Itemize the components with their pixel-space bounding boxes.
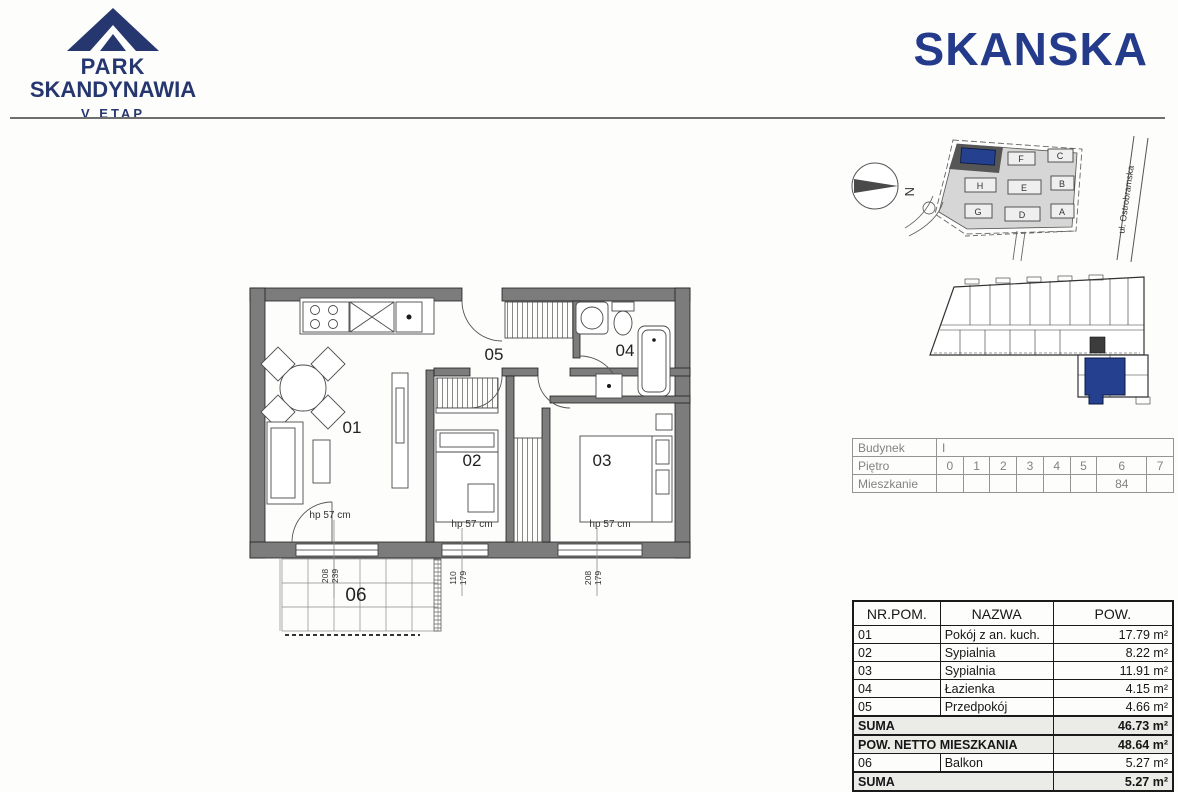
windows xyxy=(296,544,642,556)
kitchen-counter xyxy=(300,298,434,334)
header-divider xyxy=(10,117,1165,119)
apartment-row: Mieszkanie 84 xyxy=(853,475,1174,493)
wardrobe-niche xyxy=(514,438,542,542)
apartment-number: 84 xyxy=(1097,475,1147,493)
coffee-table xyxy=(313,440,330,483)
netto-row: POW. NETTO MIESZKANIA 48.64 m² xyxy=(853,735,1173,754)
suma2-value: 5.27 m² xyxy=(1053,772,1173,791)
sill-height-label-1: hp 57 cm xyxy=(309,510,350,521)
col-header-name: NAZWA xyxy=(940,601,1053,626)
room-label-06: 06 xyxy=(345,585,366,606)
street: ul. Ostrobramska xyxy=(1116,136,1148,262)
floor-overview-plan xyxy=(910,265,1178,425)
building-label-b: B xyxy=(1059,179,1065,189)
wardrobe-05 xyxy=(505,302,573,338)
north-label: N xyxy=(902,187,917,196)
floor-0: 0 xyxy=(937,457,964,475)
bed-03 xyxy=(580,436,672,522)
building-label-f: F xyxy=(1018,154,1024,164)
skanska-logo: SKANSKA xyxy=(914,22,1148,76)
floor-3: 3 xyxy=(1017,457,1044,475)
floor-5: 5 xyxy=(1070,457,1097,475)
floor-7: 7 xyxy=(1147,457,1174,475)
street-name: ul. Ostrobramska xyxy=(1116,165,1135,234)
col-header-area: POW. xyxy=(1053,601,1173,626)
sill-height-label-2: hp 57 cm xyxy=(451,519,492,530)
desk-02 xyxy=(468,484,494,512)
building-i-highlighted xyxy=(960,148,995,165)
building-row: Budynek I xyxy=(853,439,1174,457)
sofa xyxy=(267,422,303,504)
table-row: 05 Przedpokój 4.66 m² xyxy=(853,698,1173,717)
suma2-row: SUMA 5.27 m² xyxy=(853,772,1173,791)
suma-label: SUMA xyxy=(853,716,1053,735)
project-name-line2: SKANDYNAWIA xyxy=(18,78,208,102)
table-row: 04 Łazienka 4.15 m² xyxy=(853,680,1173,698)
sill-height-label-3: hp 57 cm xyxy=(589,519,630,530)
wardrobe-02 xyxy=(436,378,498,408)
table-row: 03 Sypialnia 11.91 m² xyxy=(853,662,1173,680)
table-row: 02 Sypialnia 8.22 m² xyxy=(853,644,1173,662)
dim-3b: 179 xyxy=(593,571,603,585)
stove-icon xyxy=(303,302,349,332)
developer-logo: PARK SKANDYNAWIA V ETAP xyxy=(18,8,208,121)
table-row: 01 Pokój z an. kuch. 17.79 m² xyxy=(853,626,1173,644)
building-label: Budynek xyxy=(853,439,937,457)
netto-label: POW. NETTO MIESZKANIA xyxy=(853,735,1053,754)
building-label-d: D xyxy=(1019,210,1026,220)
suma-row: SUMA 46.73 m² xyxy=(853,716,1173,735)
building-label-g: G xyxy=(974,207,981,217)
park-skandynawia-logo-icon xyxy=(65,8,161,52)
col-header-nr: NR.POM. xyxy=(853,601,940,626)
apartment-floor-plan: 01 02 03 04 05 06 hp 57 cm hp 57 cm hp 5… xyxy=(240,278,700,668)
floor-row: Piętro 0 1 2 3 4 5 6 7 xyxy=(853,457,1174,475)
netto-value: 48.64 m² xyxy=(1053,735,1173,754)
nightstand-03 xyxy=(656,414,672,430)
apartment-label: Mieszkanie xyxy=(853,475,937,493)
floor-6: 6 xyxy=(1097,457,1147,475)
building-label-a: A xyxy=(1059,207,1065,217)
building-value: I xyxy=(937,439,1174,457)
bedroom-02-furniture xyxy=(436,378,498,522)
floor-label: Piętro xyxy=(853,457,937,475)
compass-icon: N xyxy=(852,163,917,209)
bathtub-icon xyxy=(638,326,670,396)
room-label-03: 03 xyxy=(593,451,612,470)
building-label-e: E xyxy=(1021,183,1027,193)
building-label-c: C xyxy=(1057,151,1064,161)
tall-cabinet xyxy=(392,373,408,488)
toilet-icon xyxy=(612,302,634,311)
dim-2a: 110 xyxy=(448,571,458,585)
room-area-table: NR.POM. NAZWA POW. 01 Pokój z an. kuch. … xyxy=(852,600,1174,792)
room-label-01: 01 xyxy=(343,418,362,437)
room-label-05: 05 xyxy=(485,345,504,364)
floor-1: 1 xyxy=(963,457,990,475)
floor-4: 4 xyxy=(1043,457,1070,475)
balcony-row: 06 Balkon 5.27 m² xyxy=(853,754,1173,773)
dim-3a: 208 xyxy=(583,571,593,585)
room-label-04: 04 xyxy=(616,341,635,360)
suma-value: 46.73 m² xyxy=(1053,716,1173,735)
building-label-h: H xyxy=(977,181,984,191)
floor-2: 2 xyxy=(990,457,1017,475)
suma2-label: SUMA xyxy=(853,772,1053,791)
unit-info-table: Budynek I Piętro 0 1 2 3 4 5 6 7 Mieszka… xyxy=(852,438,1174,493)
room-label-02: 02 xyxy=(463,451,482,470)
site-plan: N F C H E B G D A ul. Ostrobramsk xyxy=(845,130,1178,265)
project-name-line1: PARK xyxy=(18,56,208,78)
dim-2b: 179 xyxy=(458,571,468,585)
area-table-header: NR.POM. NAZWA POW. xyxy=(853,601,1173,626)
dim-1a: 208 xyxy=(320,569,330,583)
living-room-furniture xyxy=(261,347,408,504)
dim-1b: 239 xyxy=(330,569,340,583)
